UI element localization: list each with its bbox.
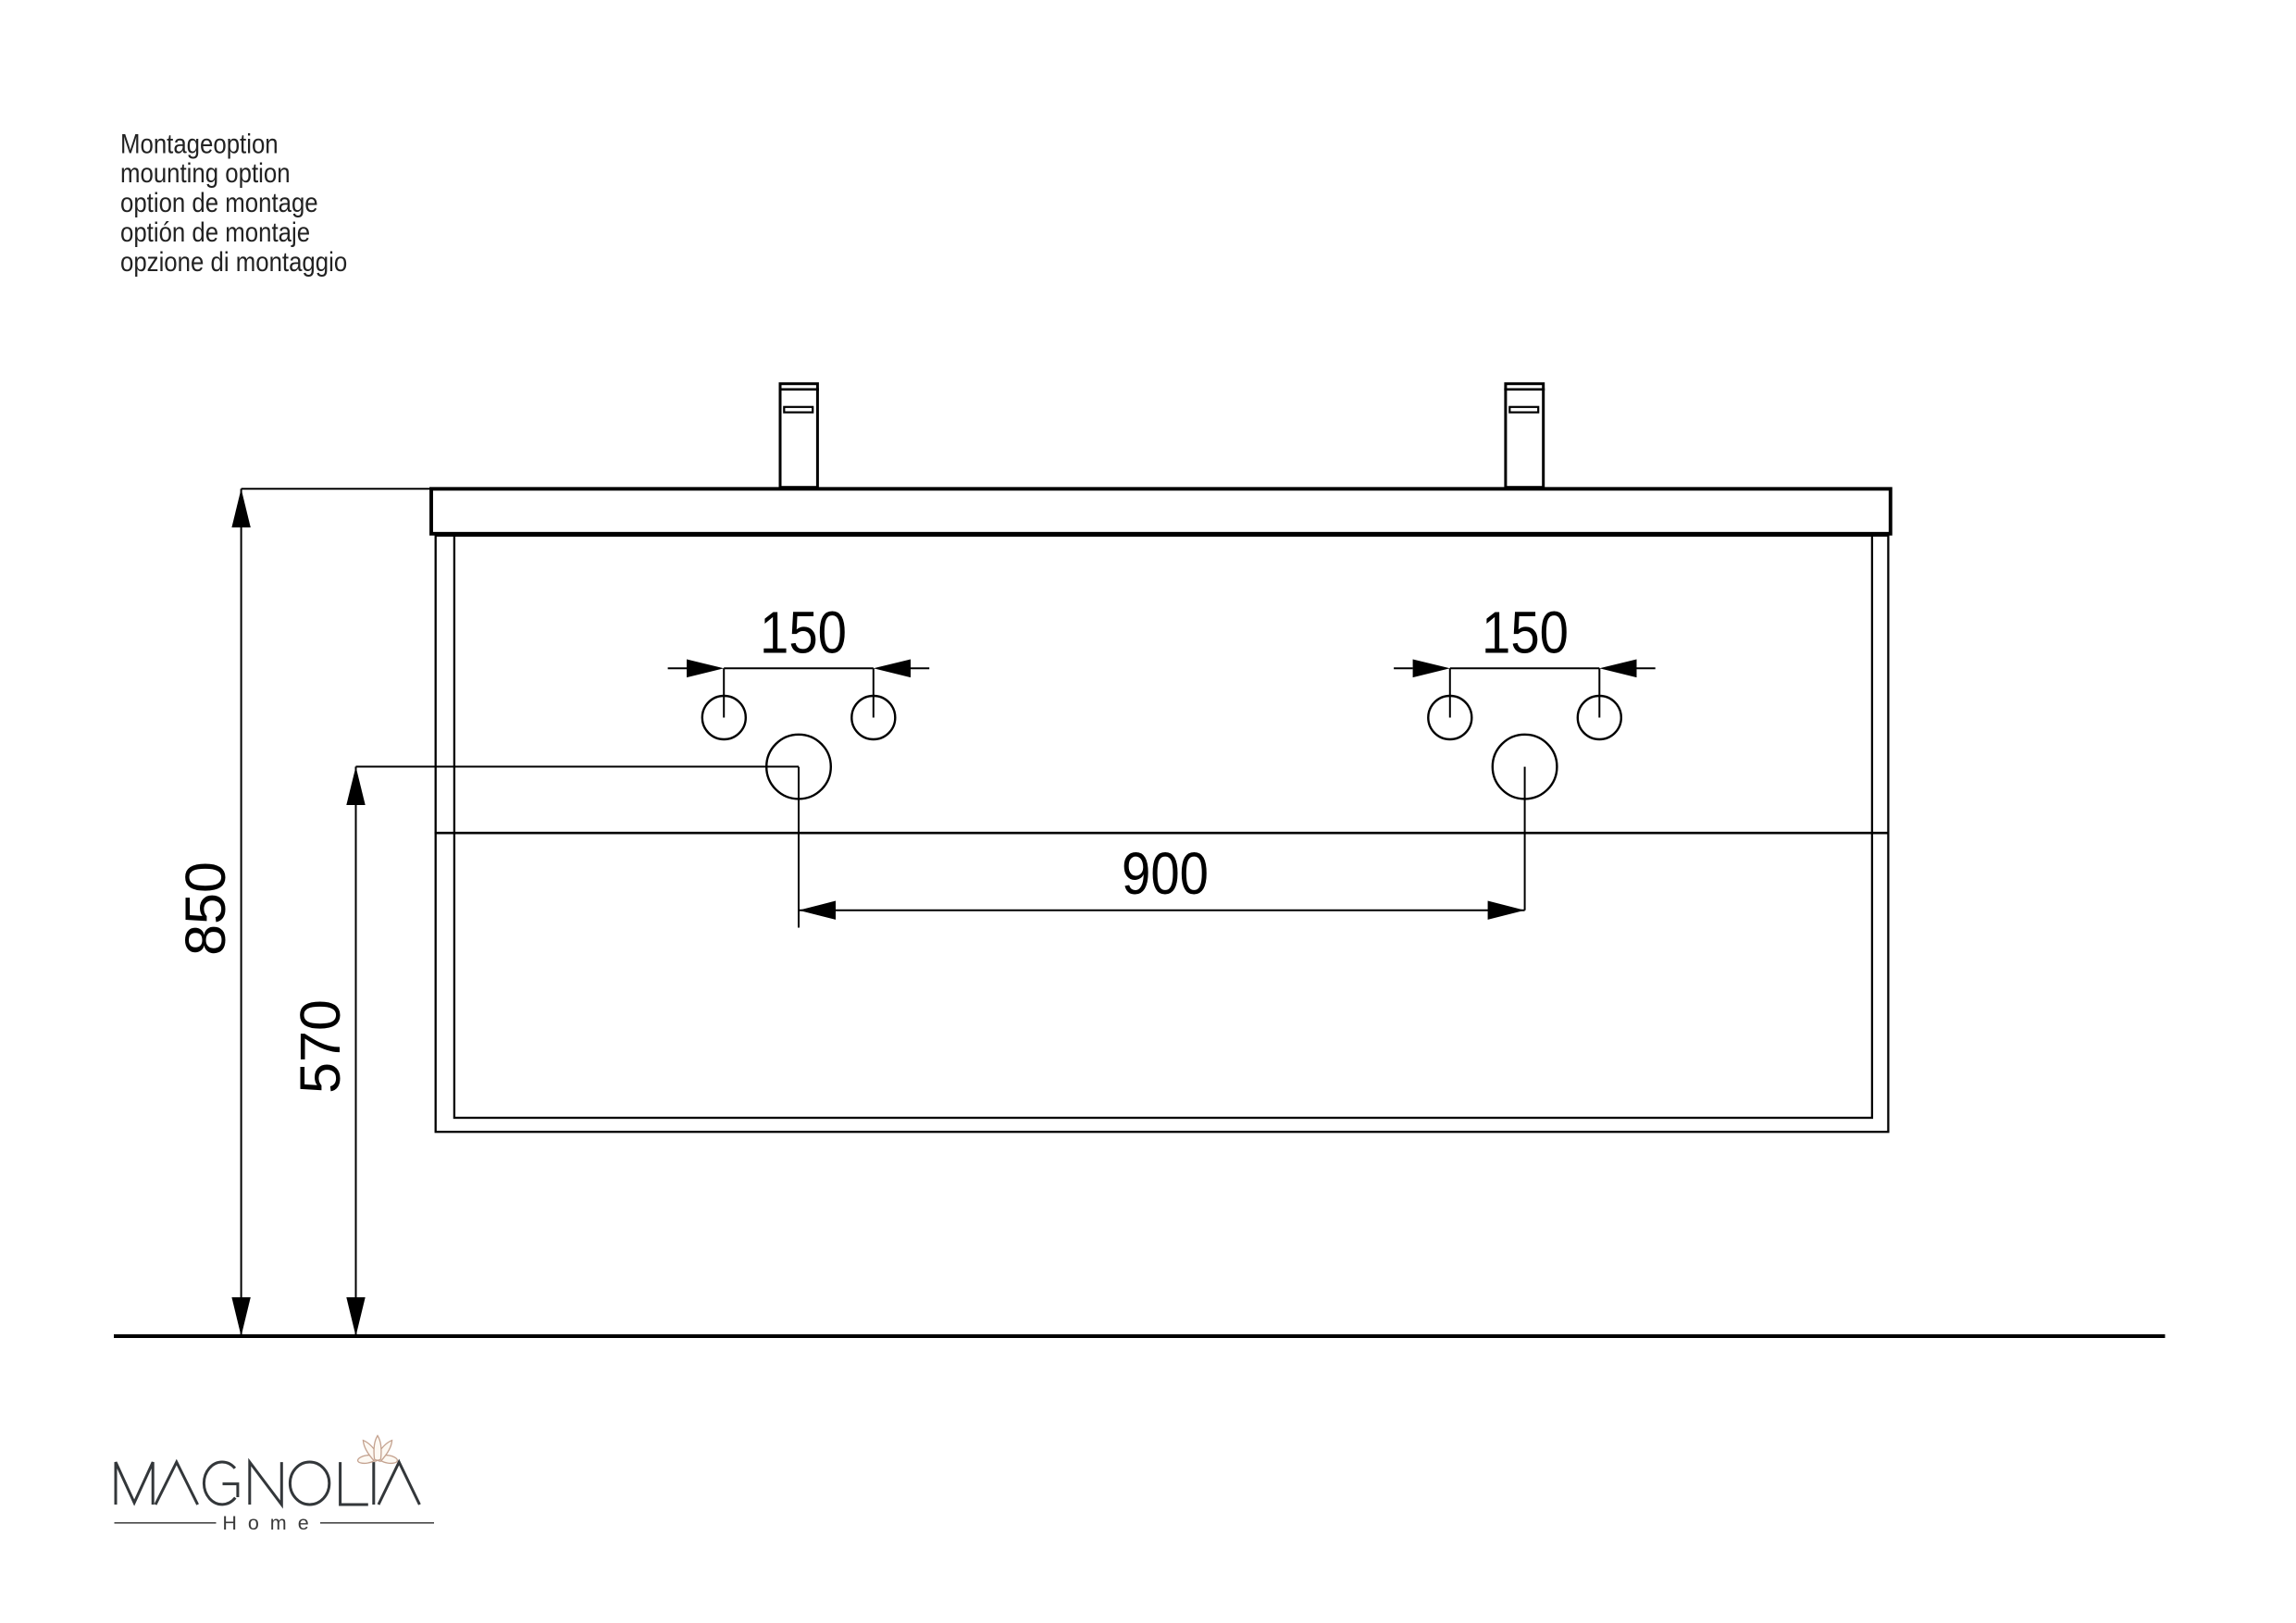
svg-text:900: 900: [1122, 840, 1209, 907]
svg-text:option de montage: option de montage: [120, 187, 318, 217]
svg-text:mounting option: mounting option: [120, 157, 291, 188]
svg-text:opzione di montaggio: opzione di montaggio: [120, 246, 347, 277]
svg-text:Montageoption: Montageoption: [120, 128, 279, 158]
svg-text:570: 570: [289, 999, 352, 1094]
svg-text:Home: Home: [222, 1512, 319, 1534]
svg-text:150: 150: [1482, 599, 1569, 665]
svg-text:optión de montaje: optión de montaje: [120, 217, 310, 247]
svg-text:150: 150: [760, 599, 847, 665]
svg-text:850: 850: [174, 861, 237, 956]
